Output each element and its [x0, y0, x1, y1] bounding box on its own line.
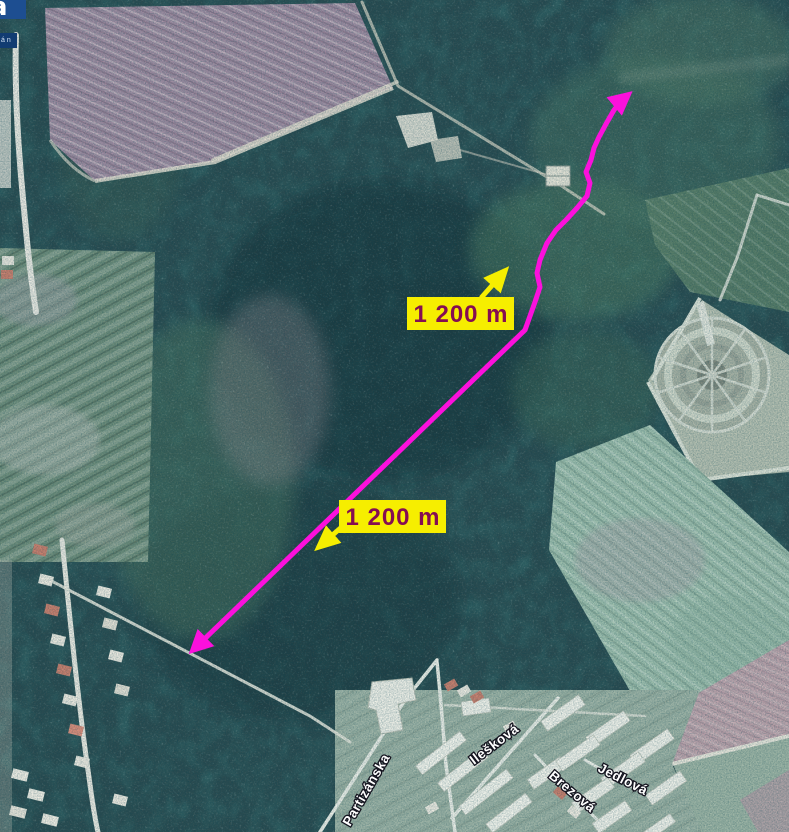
site-logo-subtext-bar: á n [0, 33, 17, 48]
distance-label-lower: 1 200 m [345, 504, 440, 531]
site-logo-glyph: a [0, 0, 26, 18]
site-logo-fragment[interactable]: a [0, 0, 26, 19]
map-canvas[interactable]: Partizánska Ilešková Brezová Jedlová 1 2… [0, 0, 789, 832]
aerial-map-screenshot: Partizánska Ilešková Brezová Jedlová 1 2… [0, 0, 789, 832]
site-logo-subtext: á n [0, 33, 17, 48]
photo-grain [0, 0, 789, 832]
distance-label-upper: 1 200 m [413, 301, 508, 328]
